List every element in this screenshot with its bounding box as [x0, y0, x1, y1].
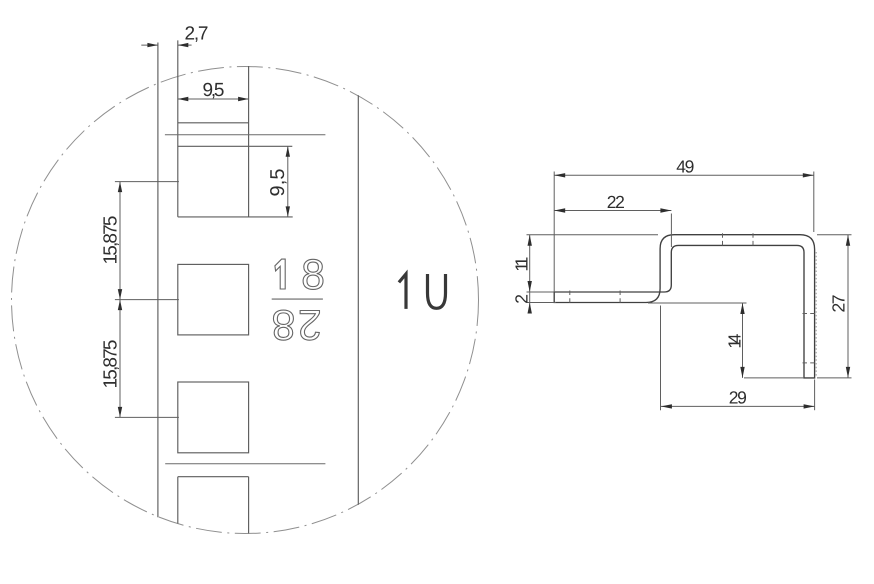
svg-text:9,5: 9,5: [267, 169, 289, 197]
svg-text:2,7: 2,7: [185, 24, 209, 45]
svg-text:11: 11: [511, 257, 531, 272]
svg-text:14: 14: [725, 333, 745, 348]
svg-text:2: 2: [511, 294, 531, 304]
svg-text:9,5: 9,5: [203, 80, 225, 101]
svg-text:15,875: 15,875: [101, 216, 122, 265]
svg-text:27: 27: [829, 295, 849, 313]
svg-text:15,875: 15,875: [101, 340, 122, 389]
svg-text:8: 8: [301, 252, 325, 299]
svg-text:29: 29: [729, 388, 747, 408]
svg-text:22: 22: [607, 192, 625, 212]
svg-text:49: 49: [676, 156, 694, 176]
